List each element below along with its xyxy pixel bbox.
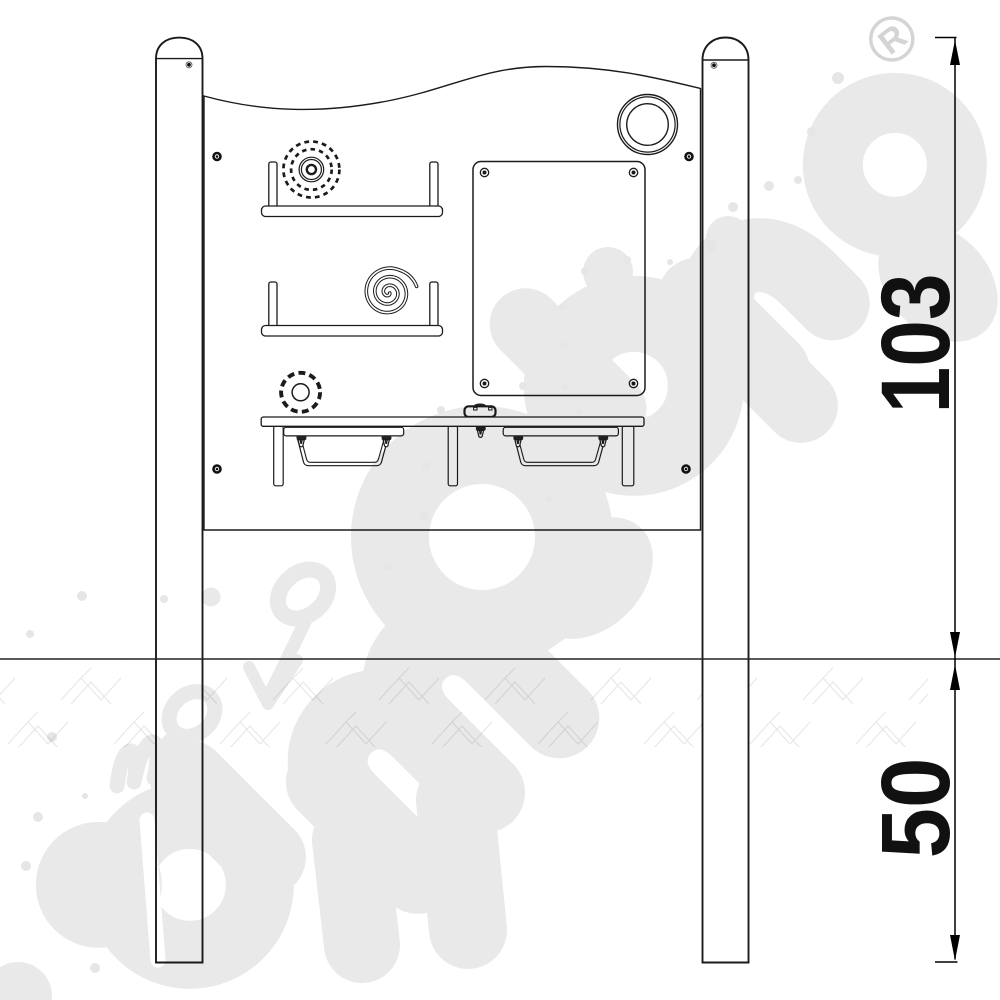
svg-text:50: 50 bbox=[861, 758, 970, 859]
